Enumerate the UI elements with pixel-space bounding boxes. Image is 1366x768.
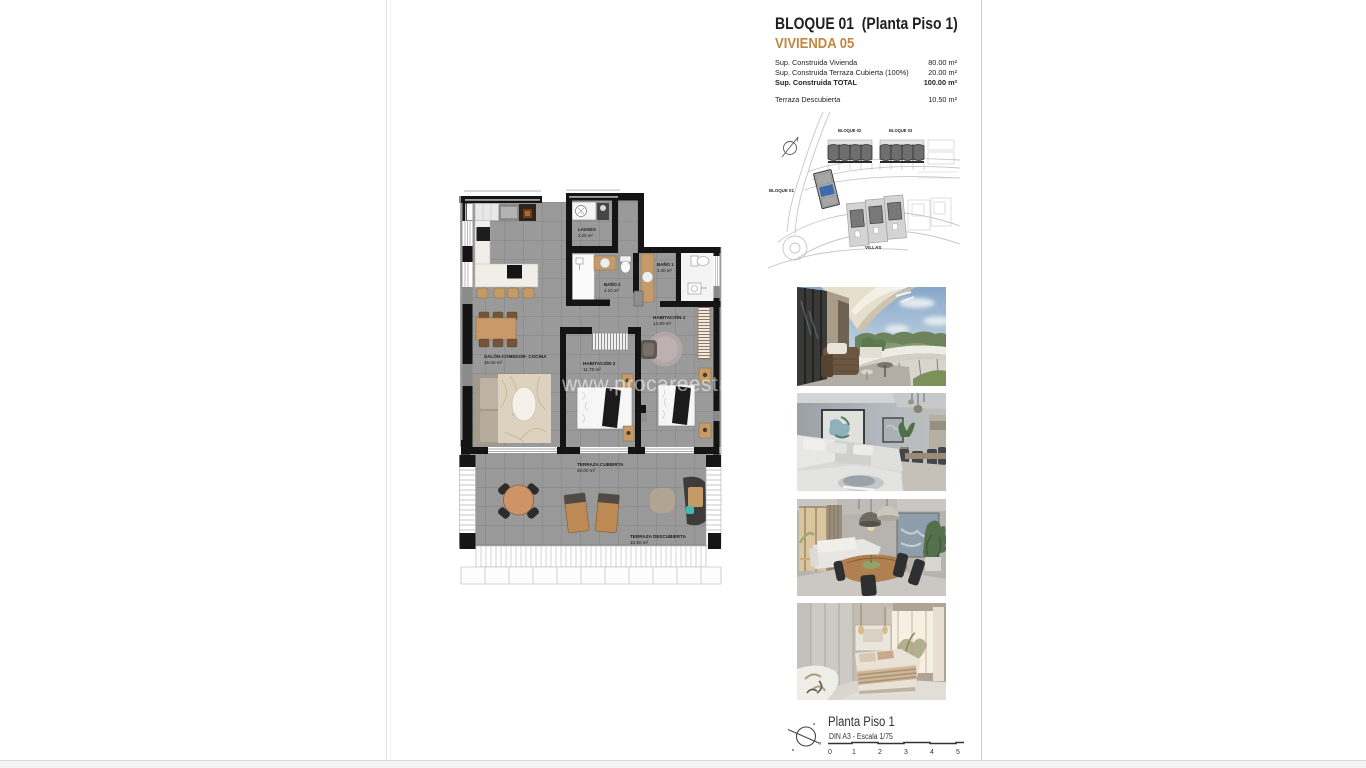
svg-text:HABITACIÓN 2: HABITACIÓN 2 bbox=[583, 359, 616, 366]
svg-text:2.20 m²: 2.20 m² bbox=[578, 233, 593, 238]
svg-text:2: 2 bbox=[878, 749, 882, 756]
svg-text:10.50 m²: 10.50 m² bbox=[630, 540, 649, 545]
svg-text:TERRAZA CUBIERTA: TERRAZA CUBIERTA bbox=[577, 462, 624, 467]
svg-text:0: 0 bbox=[828, 749, 832, 756]
svg-text:4: 4 bbox=[930, 749, 934, 756]
svg-text:1: 1 bbox=[852, 749, 856, 756]
svg-text:BLOQUE 01: BLOQUE 01 bbox=[769, 188, 794, 193]
svg-text:4.10 m²: 4.10 m² bbox=[604, 288, 619, 293]
svg-text:35.00 m²: 35.00 m² bbox=[484, 360, 503, 365]
svg-text:VILLAS: VILLAS bbox=[865, 245, 881, 250]
svg-text:TERRAZA DESCUBIERTA: TERRAZA DESCUBIERTA bbox=[630, 534, 687, 539]
svg-text:BLOQUE 03: BLOQUE 03 bbox=[889, 128, 913, 133]
svg-text:3: 3 bbox=[904, 749, 908, 756]
svg-text:SALÓN-COMEDOR- COCINA: SALÓN-COMEDOR- COCINA bbox=[484, 352, 547, 359]
svg-text:BAÑO 1: BAÑO 1 bbox=[657, 262, 674, 267]
svg-text:4.40 m²: 4.40 m² bbox=[657, 268, 672, 273]
svg-text:HABITACIÓN 1: HABITACIÓN 1 bbox=[653, 313, 686, 320]
svg-text:20.00 m²: 20.00 m² bbox=[577, 468, 596, 473]
svg-text:BLOQUE 02: BLOQUE 02 bbox=[838, 128, 862, 133]
svg-text:14.90 m²: 14.90 m² bbox=[653, 321, 672, 326]
svg-text:5: 5 bbox=[956, 749, 960, 756]
svg-text:11.70 m²: 11.70 m² bbox=[583, 367, 601, 372]
svg-text:LAVADO: LAVADO bbox=[578, 227, 596, 232]
svg-text:BAÑO 2: BAÑO 2 bbox=[604, 282, 621, 287]
